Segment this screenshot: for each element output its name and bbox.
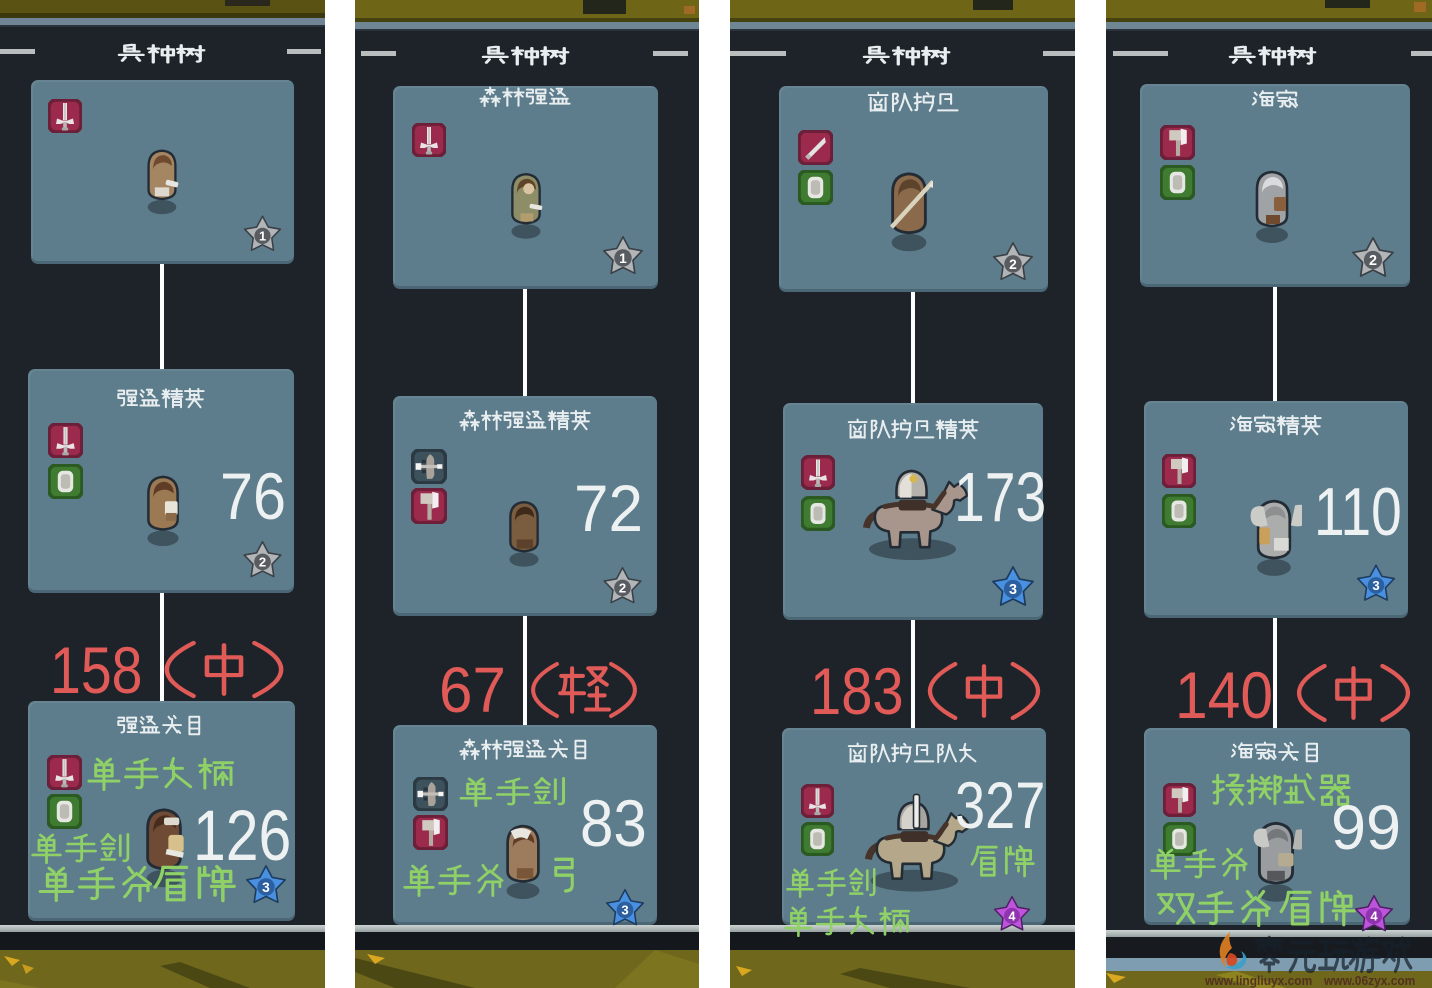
svg-text:2: 2 (259, 555, 266, 570)
svg-text:3: 3 (621, 903, 628, 918)
svg-text:1: 1 (619, 251, 627, 266)
svg-text:3: 3 (1009, 582, 1017, 598)
svg-text:2: 2 (619, 581, 626, 596)
svg-text:2: 2 (1369, 253, 1377, 269)
svg-text:3: 3 (262, 880, 270, 895)
svg-text:2: 2 (1009, 257, 1017, 272)
svg-text:3: 3 (1372, 578, 1379, 593)
svg-text:4: 4 (1370, 909, 1378, 924)
svg-text:4: 4 (1009, 909, 1016, 923)
svg-text:1: 1 (259, 229, 266, 244)
